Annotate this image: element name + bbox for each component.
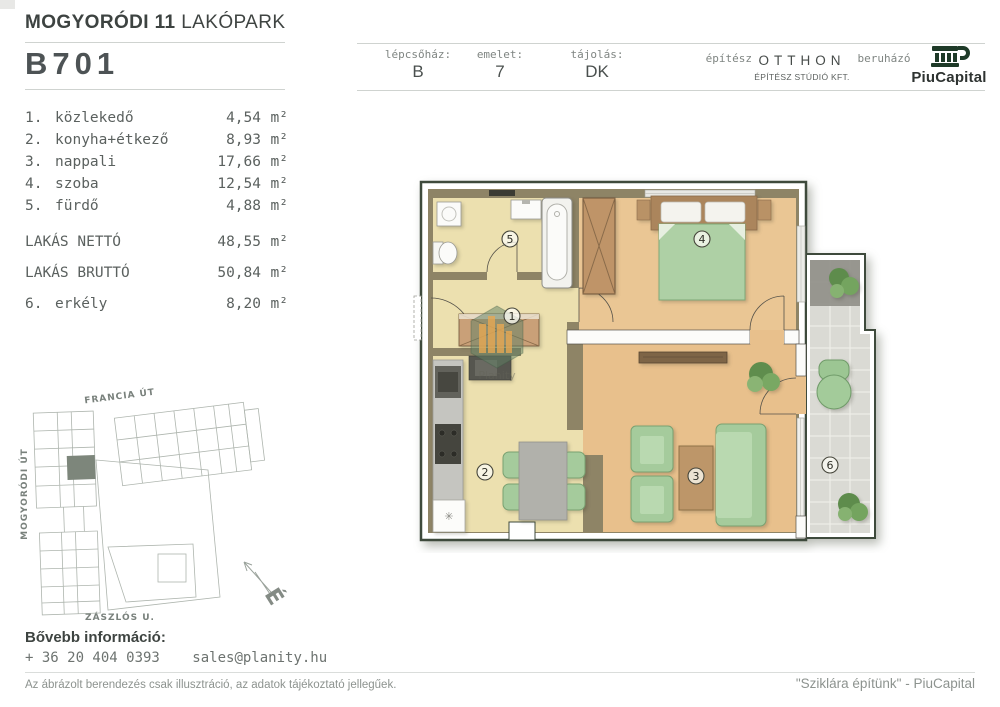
project-suffix: LAKÓPARK [181, 12, 285, 33]
armchair [631, 476, 673, 522]
project-name: MOGYORÓDI 11 [25, 12, 176, 33]
orientation-label: tájolás: [552, 48, 642, 61]
stove [435, 424, 461, 464]
gross-unit: m² [261, 262, 288, 284]
net-value: 48,55 [205, 231, 261, 253]
row-name: közlekedő [55, 107, 205, 129]
row-value: 8,20 [205, 293, 261, 315]
row-num: 6. [25, 293, 55, 315]
svg-text:5: 5 [507, 233, 514, 246]
contact-phone: + 36 20 404 0393 [25, 650, 160, 666]
row-value: 8,93 [205, 129, 261, 151]
row-num: 5. [25, 195, 55, 217]
row-unit: m² [261, 195, 288, 217]
title-divider [25, 42, 285, 43]
contact-email: sales@planity.hu [192, 650, 327, 666]
row-value: 17,66 [205, 151, 261, 173]
floor-plan: ✳ [413, 170, 900, 553]
net-label: LAKÁS NETTÓ [25, 231, 205, 253]
unit-divider [25, 89, 285, 90]
footer-divider [25, 672, 975, 673]
floor-label: emelet: [455, 48, 545, 61]
balcony-door [796, 376, 806, 414]
net-unit: m² [261, 231, 288, 253]
developer-label: beruházó [854, 52, 914, 65]
svg-text:2: 2 [482, 466, 489, 479]
room-label-3: 3 [688, 468, 704, 484]
fridge-symbol: ✳ [444, 510, 453, 523]
area-row-2: 2. konyha+étkező 8,93 m² [25, 129, 288, 151]
svg-text:1: 1 [509, 310, 516, 323]
balcony-table-set [817, 360, 851, 409]
developer-name: PiuCapital [909, 69, 989, 86]
room-label-5: 5 [502, 231, 518, 247]
row-name: nappali [55, 151, 205, 173]
area-row-3: 3. nappali 17,66 m² [25, 151, 288, 173]
footer-disclaimer: Az ábrázolt berendezés csak illusztráció… [25, 679, 396, 691]
row-unit: m² [261, 107, 288, 129]
dining-table [519, 442, 567, 520]
row-num: 1. [25, 107, 55, 129]
floor-value: 7 [455, 62, 545, 82]
row-num: 2. [25, 129, 55, 151]
site-courtyard [96, 460, 220, 610]
area-row-gross: LAKÁS BRUTTÓ 50,84 m² [25, 262, 288, 284]
row-name: konyha+étkező [55, 129, 205, 151]
header-info-band: lépcsőház: B emelet: 7 tájolás: DK építé… [357, 43, 985, 91]
piucapital-column-icon [927, 45, 971, 69]
unit-id: B701 [25, 46, 119, 82]
street-label-west: MOGYORÓDI ÚT [18, 448, 30, 540]
bathroom-vent-window [489, 190, 515, 196]
pillow [705, 202, 745, 222]
developer-logo: PiuCapital [909, 44, 989, 86]
watermark-text: Planity [478, 369, 516, 382]
architect-label: építész [657, 52, 752, 65]
row-num: 3. [25, 151, 55, 173]
info-cell-orientation: tájolás: DK [552, 48, 642, 82]
screenshot-corner-artifact [0, 0, 15, 9]
contact-line: + 36 20 404 0393 sales@planity.hu [25, 650, 327, 666]
gross-label: LAKÁS BRUTTÓ [25, 262, 205, 284]
row-unit: m² [261, 151, 288, 173]
wall-notch [509, 522, 535, 540]
bedroom-door [567, 288, 579, 322]
site-building-west [33, 411, 100, 615]
row-value: 4,88 [205, 195, 261, 217]
gross-value: 50,84 [205, 262, 261, 284]
bedroom-closet [583, 198, 615, 294]
room-label-4: 4 [694, 231, 710, 247]
bathroom-door [487, 272, 517, 280]
area-row-net: LAKÁS NETTÓ 48,55 m² [25, 231, 288, 253]
street-label-south: ZÁSZLÓS U. [85, 611, 155, 623]
info-cell-floor: emelet: 7 [455, 48, 545, 82]
contact-heading: Bővebb információ: [25, 629, 166, 646]
row-name: szoba [55, 173, 205, 195]
area-row-1: 1. közlekedő 4,54 m² [25, 107, 288, 129]
row-value: 4,54 [205, 107, 261, 129]
site-building-north [114, 401, 265, 486]
room-label-6: 6 [822, 457, 838, 473]
info-cell-staircase: lépcsőház: B [373, 48, 463, 82]
fridge: ✳ [433, 500, 465, 532]
row-unit: m² [261, 293, 288, 315]
architect-name: OTTHON [749, 53, 855, 68]
svg-text:4: 4 [699, 233, 706, 246]
room-label-2: 2 [477, 464, 493, 480]
sofa [716, 424, 766, 526]
area-row-balcony: 6. erkély 8,20 m² [25, 293, 288, 315]
row-value: 12,54 [205, 173, 261, 195]
tv-stand [639, 352, 727, 363]
site-plan: É FRANCIA ÚT MOGYORÓDI ÚT ZÁSZLÓS U. [8, 382, 298, 625]
footer-slogan: "Sziklára építünk" - PiuCapital [796, 676, 975, 691]
staircase-label: lépcsőház: [373, 48, 463, 61]
compass: É [244, 562, 289, 610]
area-table: 1. közlekedő 4,54 m² 2. konyha+étkező 8,… [25, 107, 288, 315]
room-label-1: 1 [504, 308, 520, 324]
street-label-north: FRANCIA ÚT [84, 386, 156, 407]
page-title: MOGYORÓDI 11 LAKÓPARK [25, 12, 285, 34]
washing-machine [437, 202, 461, 226]
area-row-4: 4. szoba 12,54 m² [25, 173, 288, 195]
row-num: 4. [25, 173, 55, 195]
compass-letter: É [259, 583, 289, 610]
armchair [631, 426, 673, 472]
area-row-5: 5. fürdő 4,88 m² [25, 195, 288, 217]
architect-subtitle: ÉPÍTÉSZ STÚDIÓ KFT. [745, 72, 859, 82]
svg-text:6: 6 [827, 459, 834, 472]
row-name: erkély [55, 293, 205, 315]
highlighted-unit [67, 455, 96, 480]
entry-door [414, 296, 421, 340]
row-unit: m² [261, 129, 288, 151]
svg-text:3: 3 [693, 470, 700, 483]
row-unit: m² [261, 173, 288, 195]
bedroom-living-wall [567, 330, 799, 344]
row-name: fürdő [55, 195, 205, 217]
pillow [661, 202, 701, 222]
staircase-value: B [373, 62, 463, 82]
orientation-value: DK [552, 62, 642, 82]
